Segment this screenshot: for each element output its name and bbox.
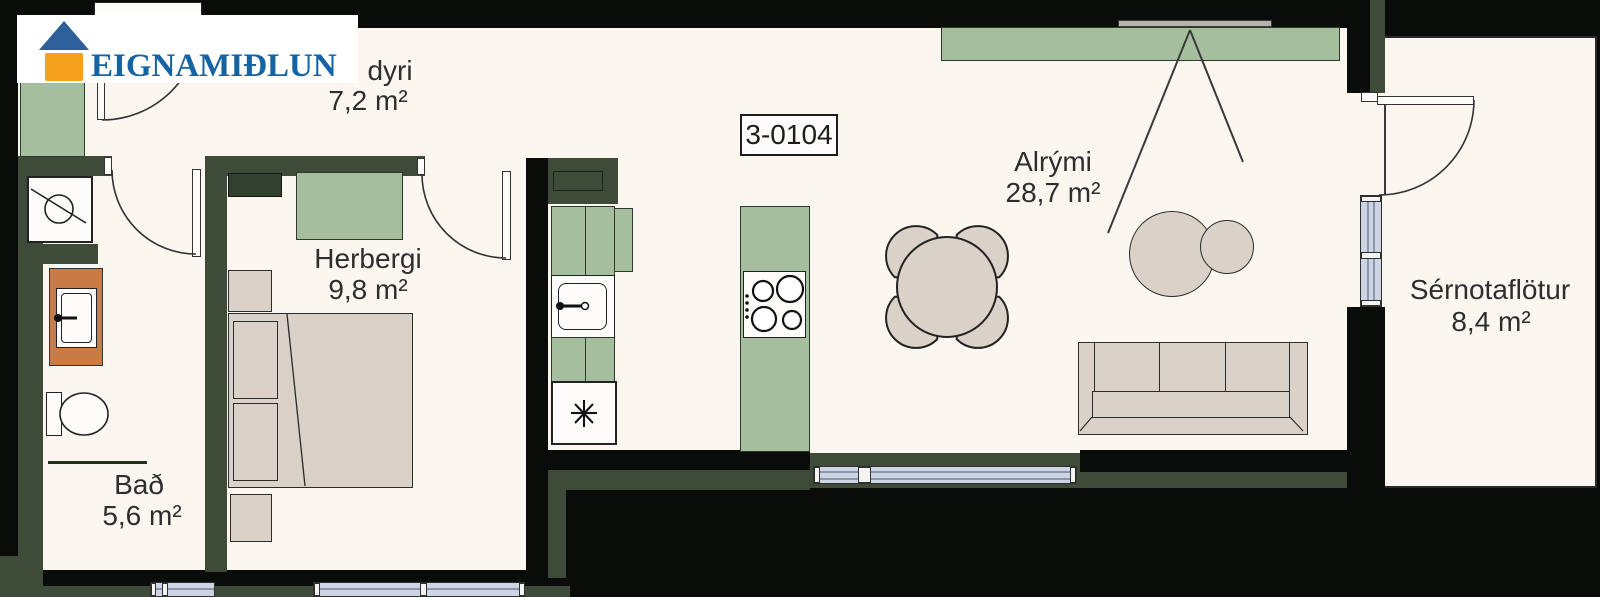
shower-line <box>48 461 147 464</box>
wall-balcony-lining <box>1370 0 1385 93</box>
room-area-alrymi: 28,7 m² <box>1006 177 1101 209</box>
wall-hall-bath-divider <box>18 156 112 176</box>
brand-logo: EIGNAMIÐLUN <box>17 15 358 83</box>
balcony-edge-bottom <box>1385 486 1597 488</box>
balcony-door-leaf <box>1377 96 1474 105</box>
wall-below-washer <box>18 244 98 264</box>
washing-machine <box>27 176 93 243</box>
wall-bottom-living-lining <box>1080 472 1347 488</box>
wall-bath-bedroom-divider <box>205 156 227 572</box>
window-balcony-wall <box>1360 195 1382 307</box>
balcony-edge-right <box>1595 36 1597 488</box>
nightstand-bottom <box>230 494 272 542</box>
logo-house-roof-icon <box>39 21 89 50</box>
room-label-alrymi: Alrými <box>1014 146 1092 178</box>
room-area-sernotaflotur: 8,4 m² <box>1451 306 1530 338</box>
bed-pillow-1 <box>233 321 278 399</box>
sofa-seat-3 <box>1225 342 1290 392</box>
room-label-bad: Bað <box>114 469 164 501</box>
wall-bottom-living-black <box>1080 450 1347 472</box>
room-label-sernotaflotur: Sérnotaflötur <box>1410 274 1570 306</box>
logo-house-body-icon <box>45 53 83 81</box>
kitchen-sink-basin <box>558 283 607 330</box>
brand-name: EIGNAMIÐLUN <box>91 48 337 85</box>
wall-balcony-lower <box>1347 307 1385 452</box>
bed-pillow-2 <box>233 403 278 481</box>
room-label-herbergi: Herbergi <box>314 243 421 275</box>
sofa-back <box>1092 391 1290 418</box>
kitchen-counter-lower-b <box>585 337 615 383</box>
wall-kitchen-left <box>526 158 548 578</box>
sofa-seat-2 <box>1159 342 1226 392</box>
window-living-bottom <box>813 466 1077 484</box>
unit-number-box: 3-0104 <box>740 114 838 156</box>
wall-bottom-kitchen <box>548 450 810 472</box>
wall-bottom-kitchen-sliver <box>548 490 566 578</box>
room-area-herbergi: 9,8 m² <box>328 274 407 306</box>
room-area-anddyri: 7,2 m² <box>328 85 407 117</box>
living-top-cabinet <box>941 27 1340 61</box>
hall-closet <box>20 78 85 157</box>
bedroom-door-leaf <box>502 171 511 260</box>
bath-door-leaf <box>192 169 201 257</box>
kitchen-header-counter-outline <box>553 171 603 191</box>
room-area-bad: 5,6 m² <box>102 500 181 532</box>
kitchen-counter-upper-b <box>585 206 615 276</box>
freezer <box>551 381 617 445</box>
bath-sink-basin <box>61 293 92 343</box>
bath-door-jamb <box>104 157 112 175</box>
kitchen-counter-upper-a <box>551 206 587 276</box>
wall-bottom-kitchen-lining <box>548 470 810 490</box>
toilet-tank <box>46 392 62 436</box>
bedroom-shelf <box>228 173 282 197</box>
window-bedroom-bottom <box>313 582 525 597</box>
kitchen-counter-lower-a <box>551 337 587 383</box>
stove <box>743 271 806 338</box>
unit-number: 3-0104 <box>745 119 832 151</box>
balcony-edge-top <box>1385 36 1597 38</box>
balcony-door-jamb <box>1361 92 1378 102</box>
kitchen-counter-extension <box>614 208 633 272</box>
floor-plan: dyri 7,2 m² Herbergi 9,8 m² Bað 5,6 m² A… <box>0 0 1600 597</box>
nightstand-top <box>228 270 272 312</box>
sofa-seat-1 <box>1094 342 1160 392</box>
window-bath-bottom <box>150 582 215 597</box>
bedroom-wardrobe <box>296 172 403 240</box>
balcony-threshold-line <box>1384 100 1386 195</box>
cabinet-rail <box>1118 20 1272 27</box>
coffee-table-small <box>1200 220 1254 274</box>
bedroom-door-jamb <box>417 158 425 175</box>
room-label-anddyri: dyri <box>367 55 412 87</box>
